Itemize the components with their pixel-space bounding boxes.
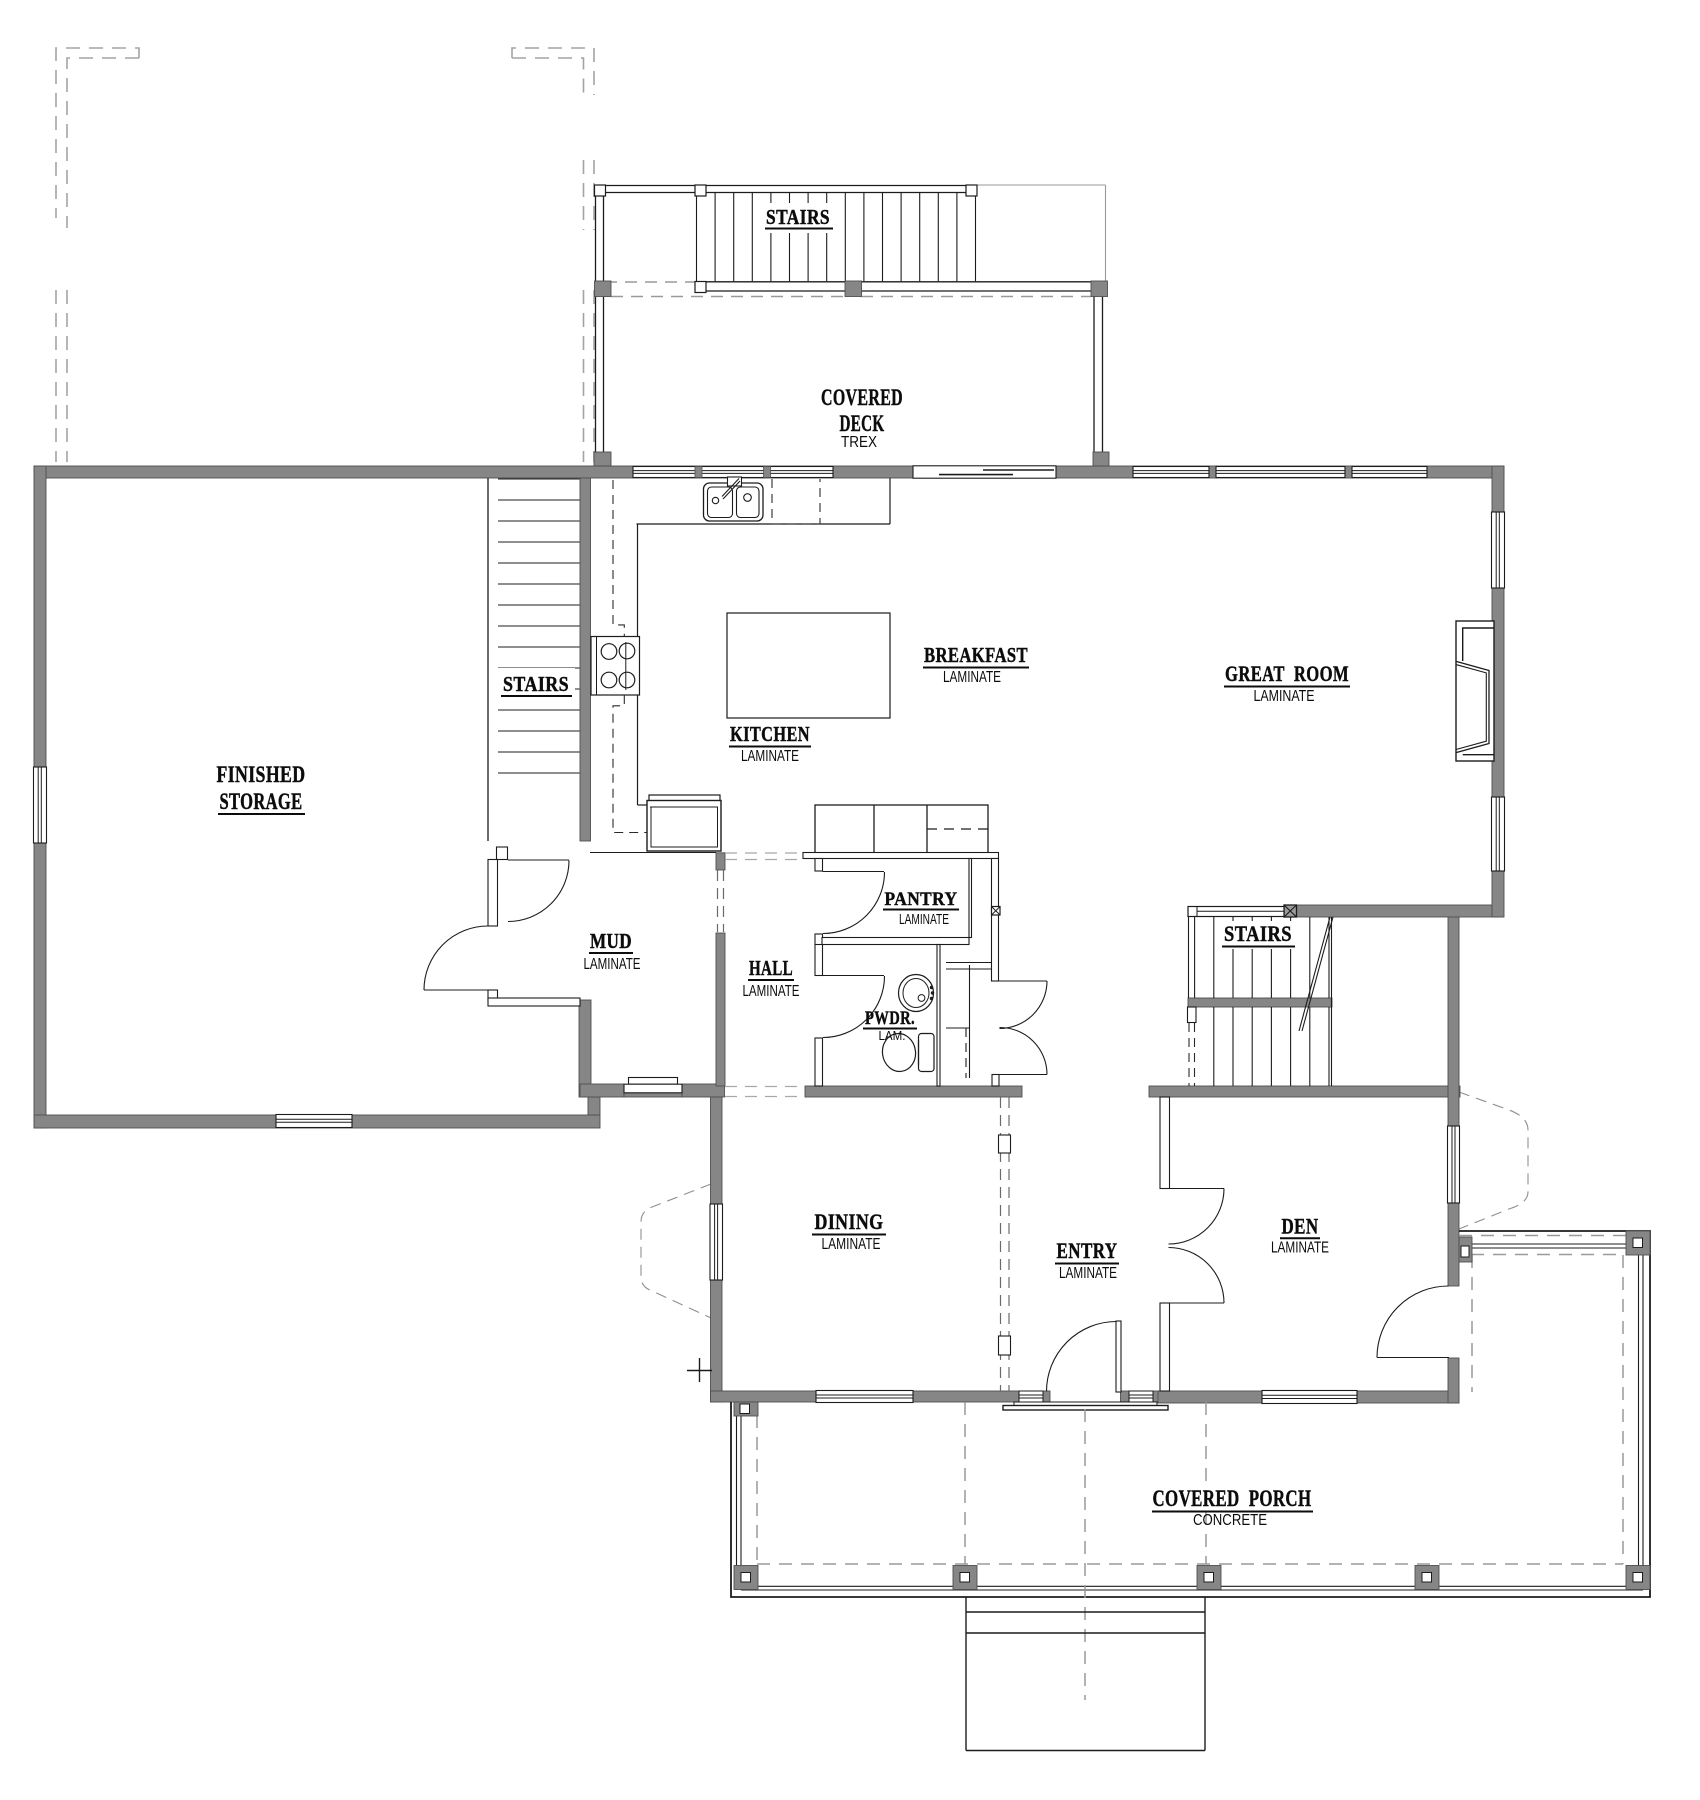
svg-text:MUD: MUD xyxy=(590,929,632,953)
svg-text:STAIRS: STAIRS xyxy=(503,672,569,696)
svg-text:LAMINATE: LAMINATE xyxy=(741,748,799,765)
svg-text:LAMINATE: LAMINATE xyxy=(899,911,949,928)
svg-text:COVERED PORCH: COVERED PORCH xyxy=(1153,1486,1312,1511)
svg-text:DINING: DINING xyxy=(815,1209,884,1234)
svg-text:LAMINATE: LAMINATE xyxy=(1271,1240,1329,1257)
svg-text:LAMINATE: LAMINATE xyxy=(822,1236,881,1253)
svg-text:DECK: DECK xyxy=(840,411,885,436)
svg-text:PANTRY: PANTRY xyxy=(885,889,958,910)
svg-text:GREAT ROOM: GREAT ROOM xyxy=(1225,661,1349,686)
svg-text:PWDR.: PWDR. xyxy=(865,1008,915,1029)
svg-text:COVERED: COVERED xyxy=(821,385,903,410)
svg-text:LAM.: LAM. xyxy=(879,1028,906,1043)
svg-text:LAMINATE: LAMINATE xyxy=(1059,1265,1117,1282)
svg-text:LAMINATE: LAMINATE xyxy=(584,956,641,973)
svg-text:KITCHEN: KITCHEN xyxy=(730,722,810,746)
svg-text:TREX: TREX xyxy=(841,434,877,451)
svg-text:STORAGE: STORAGE xyxy=(220,789,303,814)
svg-text:ENTRY: ENTRY xyxy=(1057,1238,1118,1263)
svg-text:DEN: DEN xyxy=(1282,1214,1319,1239)
svg-text:STAIRS: STAIRS xyxy=(1224,921,1292,946)
svg-text:LAMINATE: LAMINATE xyxy=(743,983,800,1000)
svg-text:HALL: HALL xyxy=(749,956,793,980)
svg-text:LAMINATE: LAMINATE xyxy=(1254,688,1315,705)
svg-text:FINISHED: FINISHED xyxy=(217,762,306,787)
svg-text:BREAKFAST: BREAKFAST xyxy=(924,643,1028,667)
svg-text:STAIRS: STAIRS xyxy=(766,205,830,229)
svg-text:LAMINATE: LAMINATE xyxy=(943,669,1001,686)
svg-text:CONCRETE: CONCRETE xyxy=(1193,1512,1267,1529)
